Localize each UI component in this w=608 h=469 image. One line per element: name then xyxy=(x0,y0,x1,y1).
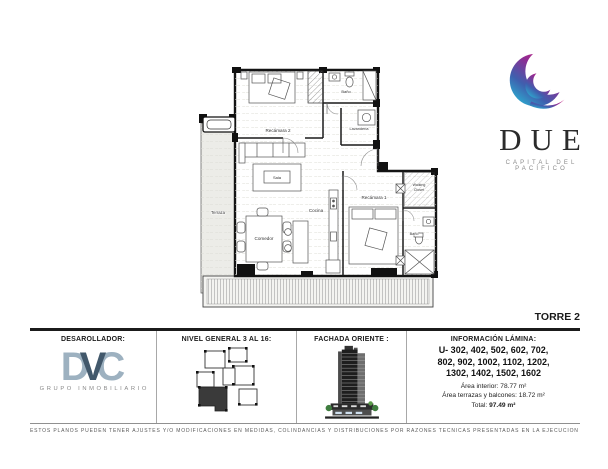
label-terraza: Terraza xyxy=(211,210,226,215)
terrace-left xyxy=(201,123,235,293)
developer-title: DESAROLLADOR: xyxy=(61,336,125,343)
brand-name: DUE xyxy=(478,124,608,155)
brand-block: DUE CAPITAL DEL PACÍFICO xyxy=(478,44,602,172)
keyplan-title: NIVEL GENERAL 3 AL 16: xyxy=(182,336,272,343)
terrace-bottom xyxy=(203,276,433,307)
label-recamara1: Recámara 1 xyxy=(361,195,386,200)
label-lavanderia: Lavandería xyxy=(350,127,370,131)
area-interior-label: Área interior: xyxy=(461,383,499,390)
terrace-planter xyxy=(203,117,235,132)
total-label: Total: xyxy=(471,402,487,409)
dvc-logo: DVC xyxy=(61,351,125,383)
units-line2: 802, 902, 1002, 1102, 1202, xyxy=(437,357,549,369)
label-cocina: Cocina xyxy=(309,208,324,213)
info-title: INFORMACIÓN LÁMINA: xyxy=(451,336,536,343)
label-comedor: Comedor xyxy=(255,236,274,241)
panel-developer: DESAROLLADOR: DVC GRUPO INMOBILIARIO xyxy=(30,331,156,423)
panel-info: INFORMACIÓN LÁMINA: U- 302, 402, 502, 60… xyxy=(406,331,580,423)
bedroom2-furniture xyxy=(241,72,303,103)
shaft-hatch xyxy=(308,71,323,103)
due-logo-icon xyxy=(507,44,573,122)
facade-title: FACHADA ORIENTE : xyxy=(314,336,389,343)
area-interior-value: 78.77 m² xyxy=(500,383,526,390)
label-walking2: Closet xyxy=(414,188,424,192)
laundry-fixtures xyxy=(358,110,375,125)
floor-plan: Recámara 2 Baño Lavandería Sala Cocina C… xyxy=(183,40,465,332)
area-terrazas-label: Área terrazas y balcones: xyxy=(442,392,517,399)
keyplan-drawing xyxy=(181,345,273,419)
area-terrazas-value: 18.72 m² xyxy=(519,392,545,399)
panel-facade: FACHADA ORIENTE : xyxy=(296,331,406,423)
label-sala: Sala xyxy=(273,175,282,180)
total-value: 97.49 m² xyxy=(489,402,515,409)
disclaimer-text: ESTOS PLANOS PUEDEN TENER AJUSTES Y/O MO… xyxy=(30,428,580,434)
label-bano1: Baño xyxy=(410,232,419,236)
floor-plan-drawing: Recámara 2 Baño Lavandería Sala Cocina C… xyxy=(183,40,465,332)
units-line3: 1302, 1402, 1502, 1602 xyxy=(437,368,549,380)
info-units: U- 302, 402, 502, 602, 702, 802, 902, 10… xyxy=(437,345,549,380)
label-recamara2: Recámara 2 xyxy=(265,128,290,133)
dvc-letter-v: V xyxy=(80,351,107,383)
units-line1: U- 302, 402, 502, 602, 702, xyxy=(437,345,549,357)
area-interior-row: Área interior: 78.77 m² xyxy=(461,383,527,390)
panel-keyplan: NIVEL GENERAL 3 AL 16: xyxy=(156,331,296,423)
sheet-info-table: DESAROLLADOR: DVC GRUPO INMOBILIARIO NIV… xyxy=(30,328,580,424)
label-bano2: Baño xyxy=(341,89,351,94)
brand-tagline: CAPITAL DEL PACÍFICO xyxy=(478,160,605,172)
tower-label: TORRE 2 xyxy=(535,311,580,323)
facade-drawing xyxy=(317,344,387,422)
area-terrazas-row: Área terrazas y balcones: 18.72 m² xyxy=(442,392,545,399)
label-walking1: Walking xyxy=(413,183,426,187)
total-row: Total: 97.49 m² xyxy=(471,402,515,409)
